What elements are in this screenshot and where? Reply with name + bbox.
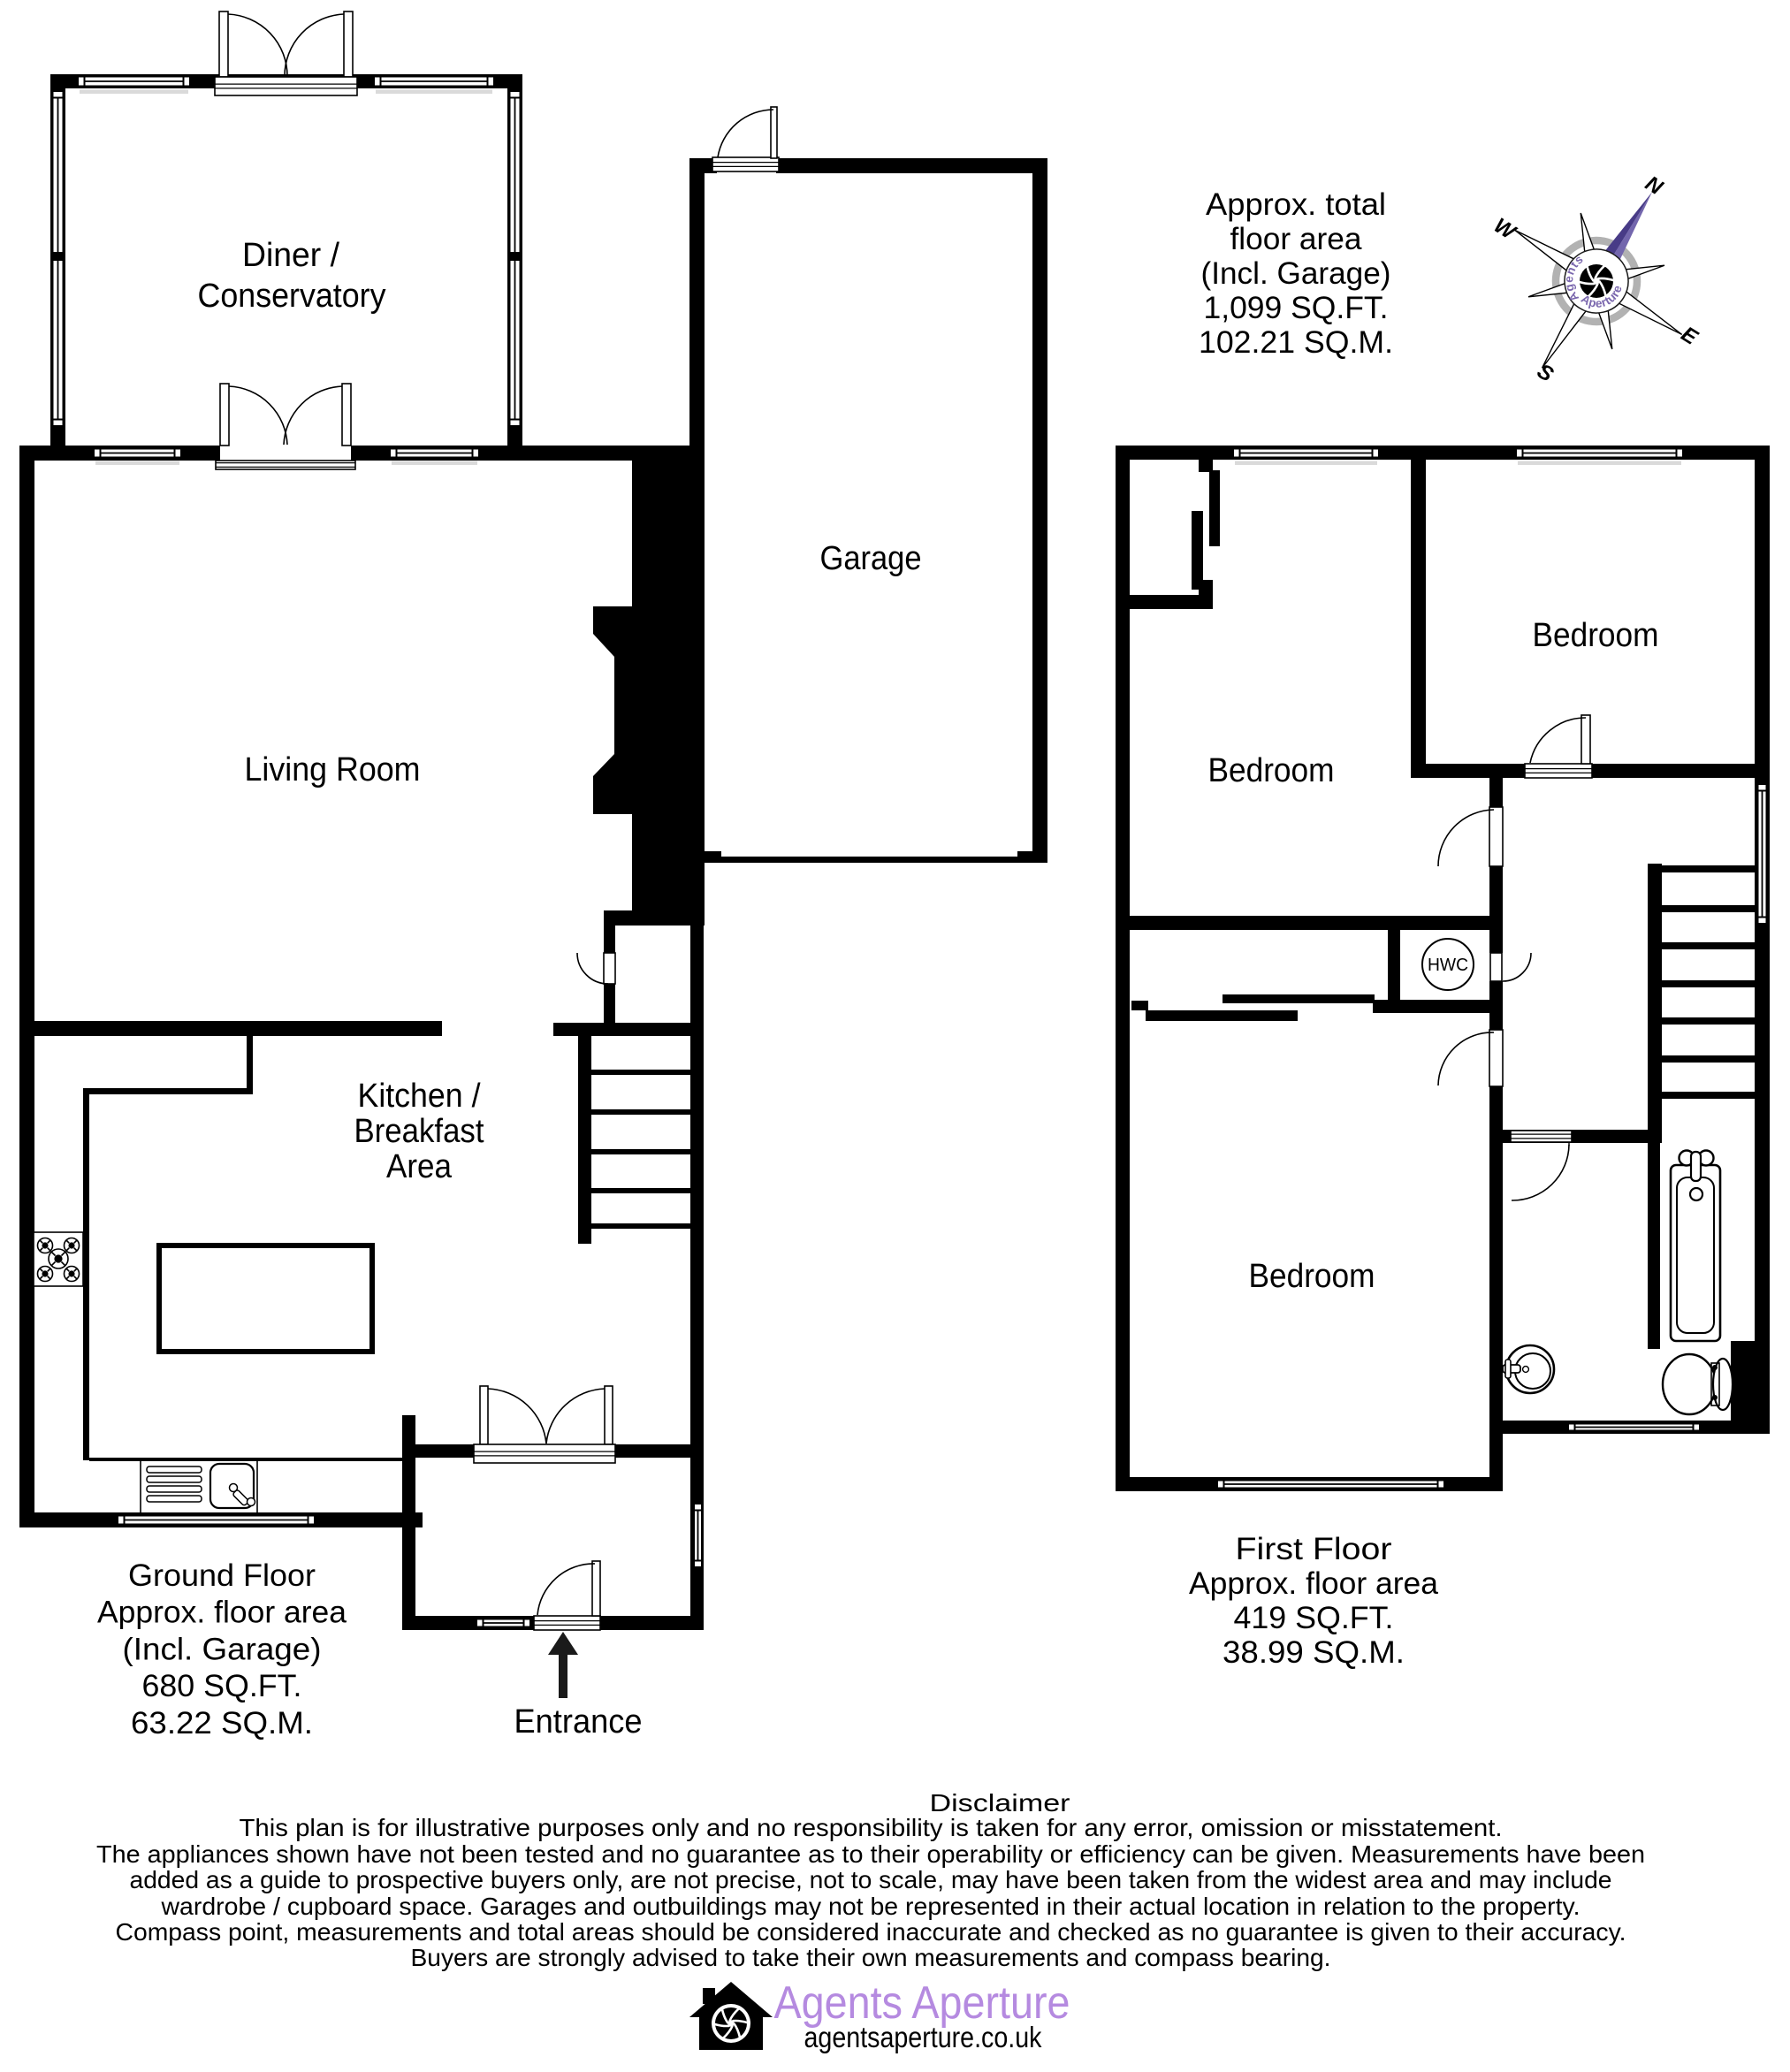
svg-text:Diner /: Diner /	[242, 237, 339, 274]
svg-text:63.22 SQ.M.: 63.22 SQ.M.	[131, 1706, 313, 1741]
svg-text:680 SQ.FT.: 680 SQ.FT.	[142, 1669, 302, 1703]
svg-text:Breakfast: Breakfast	[354, 1113, 484, 1150]
svg-text:HWC: HWC	[1428, 956, 1468, 975]
svg-text:Area: Area	[386, 1148, 453, 1185]
svg-text:Approx. floor area: Approx. floor area	[1189, 1566, 1439, 1601]
svg-text:Bedroom: Bedroom	[1249, 1258, 1375, 1295]
svg-text:Entrance: Entrance	[514, 1703, 643, 1741]
svg-text:102.21 SQ.M.: 102.21 SQ.M.	[1199, 325, 1393, 360]
svg-text:Buyers are strongly advised to: Buyers are strongly advised to take thei…	[411, 1944, 1331, 1971]
svg-text:(Incl. Garage): (Incl. Garage)	[1201, 256, 1391, 291]
svg-text:added as a guide to prospectiv: added as a guide to prospective buyers o…	[130, 1866, 1612, 1893]
svg-text:Compass point, measurements an: Compass point, measurements and total ar…	[116, 1918, 1626, 1946]
svg-text:419 SQ.FT.: 419 SQ.FT.	[1234, 1601, 1394, 1635]
svg-text:Approx. total: Approx. total	[1206, 187, 1386, 222]
svg-text:38.99 SQ.M.: 38.99 SQ.M.	[1223, 1635, 1405, 1670]
svg-text:Conservatory: Conservatory	[198, 278, 386, 315]
svg-text:Garage: Garage	[820, 540, 922, 577]
svg-text:The appliances shown have not: The appliances shown have not been teste…	[96, 1840, 1645, 1868]
svg-text:floor area: floor area	[1230, 222, 1363, 256]
svg-text:First Floor: First Floor	[1236, 1532, 1392, 1566]
svg-text:Bedroom: Bedroom	[1533, 617, 1659, 654]
svg-text:(Incl. Garage): (Incl. Garage)	[123, 1632, 322, 1666]
svg-text:Kitchen /: Kitchen /	[358, 1078, 481, 1115]
svg-text:agentsaperture.co.uk: agentsaperture.co.uk	[804, 2021, 1042, 2053]
svg-text:wardrobe / cupboard space. Gar: wardrobe / cupboard space. Garages and o…	[160, 1893, 1580, 1920]
svg-text:Living Room: Living Room	[245, 751, 421, 788]
svg-text:Disclaimer: Disclaimer	[930, 1789, 1070, 1817]
svg-text:Approx. floor area: Approx. floor area	[97, 1596, 347, 1630]
svg-text:Bedroom: Bedroom	[1208, 752, 1335, 789]
svg-text:This plan is for illustrative: This plan is for illustrative purposes o…	[240, 1814, 1503, 1841]
svg-text:1,099 SQ.FT.: 1,099 SQ.FT.	[1204, 291, 1389, 325]
svg-text:Ground Floor: Ground Floor	[128, 1558, 316, 1593]
